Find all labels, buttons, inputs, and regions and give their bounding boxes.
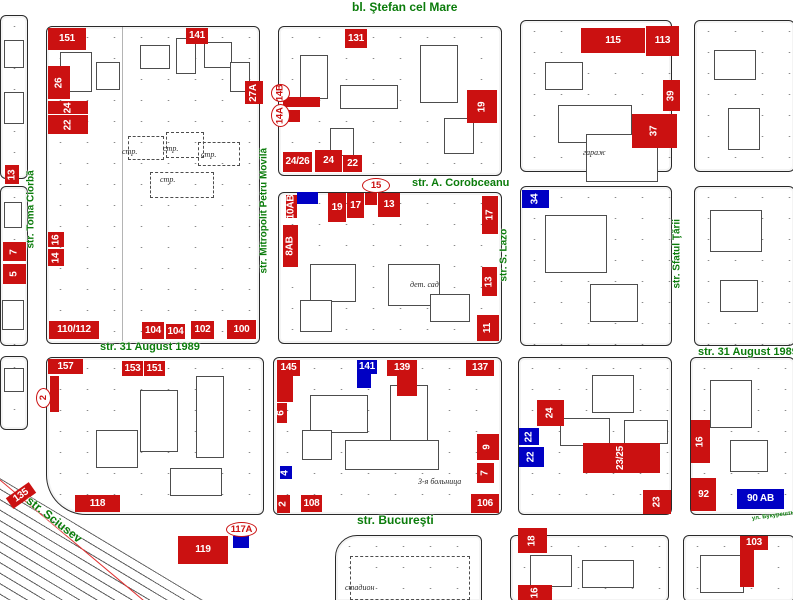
address-marker-label: 110/112 bbox=[57, 325, 91, 335]
street-label: str. Mitropolit Petru Movilă bbox=[259, 148, 270, 274]
building-outline bbox=[720, 280, 758, 312]
address-marker-label: 11 bbox=[483, 323, 493, 333]
address-marker-27A[interactable]: 27A bbox=[245, 81, 263, 104]
address-marker-label: 13 bbox=[484, 276, 494, 287]
address-marker-24[interactable]: 24 bbox=[48, 101, 88, 114]
address-marker-131[interactable]: 131 bbox=[345, 29, 367, 48]
building-outline bbox=[300, 55, 328, 99]
building-outline bbox=[592, 375, 634, 413]
building-outline bbox=[310, 264, 356, 302]
address-marker-13[interactable]: 13 bbox=[378, 193, 400, 217]
map-annotation: стр. bbox=[163, 144, 178, 153]
address-marker-label: 106 bbox=[477, 499, 493, 509]
address-marker-108[interactable]: 108 bbox=[301, 495, 322, 512]
map-annotation: стр. bbox=[201, 150, 216, 159]
address-marker-24[interactable]: 24 bbox=[315, 150, 342, 172]
address-marker-label: 139 bbox=[394, 363, 410, 373]
address-marker-10AB[interactable]: 10AB bbox=[286, 195, 297, 218]
building-outline bbox=[420, 45, 458, 103]
building-outline bbox=[710, 380, 752, 428]
address-marker[interactable] bbox=[283, 97, 320, 107]
street-label: str. 31 August 1989 bbox=[100, 341, 200, 353]
address-marker-16[interactable]: 16 bbox=[518, 585, 552, 600]
address-marker-15[interactable]: 15 bbox=[362, 178, 390, 193]
address-marker-label: 10AB bbox=[287, 194, 297, 219]
address-marker-label: 157 bbox=[57, 362, 73, 372]
address-marker-label: 100 bbox=[233, 325, 249, 335]
building-outline bbox=[96, 62, 120, 90]
address-marker-22[interactable]: 22 bbox=[343, 155, 362, 172]
address-marker-label: 104 bbox=[145, 326, 161, 336]
address-marker-label: 131 bbox=[348, 34, 364, 44]
address-marker-label: 15 bbox=[371, 181, 381, 191]
address-marker-14B[interactable]: 14B bbox=[271, 84, 290, 102]
address-marker-17[interactable]: 17 bbox=[347, 193, 364, 218]
address-marker-11[interactable]: 11 bbox=[477, 315, 499, 341]
address-marker-16[interactable]: 16 bbox=[691, 420, 710, 463]
street-label: str. Sfatul Ţării bbox=[672, 219, 683, 288]
building-outline bbox=[700, 555, 744, 593]
building-outline bbox=[545, 215, 607, 273]
address-marker-label: 4 bbox=[281, 470, 291, 475]
address-marker-label: 22 bbox=[347, 159, 358, 169]
address-marker-23-25[interactable]: 23/25 bbox=[583, 443, 660, 473]
address-marker-label: 14 bbox=[51, 252, 61, 263]
building-outline bbox=[624, 420, 668, 444]
address-marker-115[interactable]: 115 bbox=[581, 28, 645, 53]
address-marker-label: 27A bbox=[249, 84, 259, 102]
address-marker-34[interactable]: 34 bbox=[522, 190, 549, 208]
address-marker-label: 34 bbox=[530, 194, 540, 205]
address-marker-label: 14B bbox=[276, 85, 286, 102]
address-marker-113[interactable]: 113 bbox=[646, 26, 679, 56]
address-marker-19[interactable]: 19 bbox=[328, 193, 346, 222]
address-marker-119[interactable]: 119 bbox=[178, 536, 228, 564]
address-marker-139[interactable]: 139 bbox=[387, 360, 417, 376]
building-outline bbox=[728, 108, 760, 150]
address-marker-2[interactable]: 2 bbox=[36, 388, 51, 408]
address-marker-label: 115 bbox=[605, 36, 621, 46]
address-marker-100[interactable]: 100 bbox=[227, 320, 256, 339]
address-marker-label: 151 bbox=[59, 34, 75, 44]
address-marker[interactable] bbox=[233, 536, 249, 548]
address-marker-label: 90 AB bbox=[747, 494, 774, 504]
address-marker-label: 19 bbox=[332, 203, 343, 213]
address-marker-label: 118 bbox=[90, 499, 106, 509]
building-outline bbox=[196, 376, 224, 458]
address-marker-19[interactable]: 19 bbox=[467, 90, 497, 123]
address-marker-23[interactable]: 23 bbox=[643, 490, 671, 514]
address-marker-label: 102 bbox=[194, 325, 210, 335]
address-marker-label: 108 bbox=[303, 499, 319, 509]
street-label: bl. Ştefan cel Mare bbox=[352, 0, 457, 14]
building-outline bbox=[350, 556, 470, 600]
address-marker-7[interactable]: 7 bbox=[3, 242, 26, 261]
address-marker-14A[interactable]: 14A bbox=[271, 104, 290, 127]
map-annotation: стр. bbox=[160, 175, 175, 184]
building-outline bbox=[140, 45, 170, 69]
address-marker-18[interactable]: 18 bbox=[518, 528, 547, 553]
address-marker-22[interactable]: 22 bbox=[519, 428, 539, 445]
address-marker-151[interactable]: 151 bbox=[144, 361, 165, 376]
address-marker-label: 23 bbox=[652, 497, 662, 508]
building-outline bbox=[714, 50, 756, 80]
address-marker-37[interactable]: 37 bbox=[632, 114, 677, 148]
address-marker-39[interactable]: 39 bbox=[663, 80, 680, 111]
address-marker-label: 22 bbox=[63, 119, 73, 130]
address-marker-9[interactable]: 9 bbox=[477, 434, 499, 460]
address-marker-151[interactable]: 151 bbox=[48, 28, 86, 50]
building-outline bbox=[300, 300, 332, 332]
address-marker-label: 22 bbox=[526, 452, 536, 463]
address-marker-label: 7 bbox=[481, 470, 491, 475]
address-marker-6[interactable]: 6 bbox=[277, 403, 287, 423]
address-marker-104[interactable]: 104 bbox=[142, 322, 164, 339]
building-outline bbox=[4, 92, 24, 124]
building-outline bbox=[530, 555, 572, 587]
address-marker-117A[interactable]: 117A bbox=[226, 522, 257, 537]
address-marker-137[interactable]: 137 bbox=[466, 360, 494, 376]
address-marker-label: 8AB bbox=[286, 236, 296, 255]
address-marker-90-AB[interactable]: 90 AB bbox=[737, 489, 784, 509]
address-marker-label: 141 bbox=[189, 31, 205, 41]
address-marker-label: 16 bbox=[51, 234, 61, 245]
building-outline bbox=[560, 418, 610, 446]
address-marker-label: 7 bbox=[10, 249, 20, 254]
street-label: str. Toma Ciorbă bbox=[26, 170, 37, 248]
address-marker-label: 24 bbox=[545, 408, 555, 419]
address-marker-label: 24 bbox=[323, 156, 334, 166]
address-marker-label: 145 bbox=[280, 363, 296, 373]
address-marker-label: 104 bbox=[167, 327, 183, 337]
address-marker-label: 23/25 bbox=[617, 446, 627, 470]
building-outline bbox=[140, 390, 178, 452]
address-marker-2[interactable]: 2 bbox=[277, 495, 290, 513]
address-marker-label: 153 bbox=[124, 364, 140, 374]
address-marker-label: 26 bbox=[54, 77, 64, 88]
building-outline bbox=[730, 440, 768, 472]
address-marker-26[interactable]: 26 bbox=[48, 66, 70, 99]
address-marker-13[interactable]: 13 bbox=[482, 267, 497, 296]
street-label: str. 31 August 1989 bbox=[698, 346, 793, 358]
building-outline bbox=[170, 468, 222, 496]
address-marker-label: 39 bbox=[666, 90, 676, 101]
address-marker-label: 9 bbox=[483, 444, 493, 449]
map-annotation: гараж bbox=[583, 148, 606, 157]
address-marker-label: 151 bbox=[146, 364, 162, 374]
address-marker[interactable] bbox=[50, 376, 59, 412]
address-marker-17[interactable]: 17 bbox=[482, 196, 498, 234]
address-marker-153[interactable]: 153 bbox=[122, 361, 143, 376]
address-marker-label: 2 bbox=[39, 395, 49, 400]
address-marker-label: 113 bbox=[655, 36, 671, 46]
address-marker-label: 117A bbox=[231, 525, 252, 535]
building-outline bbox=[545, 62, 583, 90]
address-marker-label: 22 bbox=[524, 431, 534, 442]
address-marker-label: 13 bbox=[7, 169, 17, 180]
address-marker-label: 103 bbox=[746, 538, 762, 548]
building-outline bbox=[2, 300, 24, 330]
map-annotation: дет. сад bbox=[410, 280, 439, 289]
address-marker-label: 37 bbox=[649, 126, 659, 137]
building-outline bbox=[96, 430, 138, 468]
address-marker-145[interactable]: 145 bbox=[277, 360, 300, 376]
address-marker-label: 5 bbox=[10, 271, 20, 276]
map-annotation: стадион bbox=[345, 583, 374, 592]
building-outline bbox=[430, 294, 470, 322]
building-outline bbox=[302, 430, 332, 460]
address-marker-label: 24 bbox=[63, 102, 73, 113]
address-marker[interactable] bbox=[277, 376, 293, 402]
address-marker-110-112[interactable]: 110/112 bbox=[49, 321, 99, 339]
street-label: str. Bucureşti bbox=[357, 513, 434, 527]
address-marker-24[interactable]: 24 bbox=[537, 400, 564, 426]
address-marker-label: 92 bbox=[698, 490, 709, 500]
building-outline bbox=[590, 284, 638, 322]
address-marker-106[interactable]: 106 bbox=[471, 494, 499, 513]
address-marker[interactable] bbox=[365, 193, 377, 205]
address-marker-13[interactable]: 13 bbox=[5, 165, 19, 184]
map-canvas[interactable]: 15114126242227A13161475110/1121041041021… bbox=[0, 0, 793, 600]
address-marker-label: 2 bbox=[279, 501, 289, 506]
street-label: str. A. Corobceanu bbox=[412, 177, 509, 189]
address-marker-label: 13 bbox=[384, 200, 395, 210]
address-marker-118[interactable]: 118 bbox=[75, 495, 120, 512]
building-outline bbox=[4, 368, 24, 392]
address-marker-5[interactable]: 5 bbox=[3, 264, 26, 284]
address-marker-24-26[interactable]: 24/26 bbox=[283, 152, 312, 172]
address-marker-8AB[interactable]: 8AB bbox=[283, 225, 298, 267]
building-outline bbox=[582, 560, 634, 588]
address-marker-label: 24/26 bbox=[285, 157, 309, 167]
address-marker-label: 141 bbox=[359, 362, 375, 372]
address-marker-22[interactable]: 22 bbox=[48, 115, 88, 134]
address-marker-141[interactable]: 141 bbox=[357, 360, 377, 374]
address-marker-157[interactable]: 157 bbox=[48, 359, 83, 374]
map-annotation: 3-я больница bbox=[418, 477, 461, 486]
building-outline bbox=[4, 40, 24, 68]
address-marker-102[interactable]: 102 bbox=[191, 321, 214, 339]
parcel-line bbox=[122, 27, 123, 341]
address-marker-label: 16 bbox=[530, 587, 540, 598]
address-marker-103[interactable]: 103 bbox=[740, 536, 768, 550]
address-marker-16[interactable]: 16 bbox=[48, 232, 64, 247]
street-label: str. S. Lazo bbox=[499, 229, 510, 282]
address-marker-label: 137 bbox=[472, 363, 488, 373]
address-marker-label: 14A bbox=[276, 107, 286, 124]
building-outline bbox=[310, 395, 368, 433]
address-marker[interactable] bbox=[297, 192, 318, 204]
building-outline bbox=[710, 210, 762, 252]
address-marker-4[interactable]: 4 bbox=[280, 466, 292, 479]
address-marker[interactable] bbox=[397, 376, 417, 396]
address-marker-label: 16 bbox=[695, 436, 705, 447]
address-marker-label: 18 bbox=[527, 535, 537, 546]
address-marker-7[interactable]: 7 bbox=[477, 463, 494, 483]
address-marker-92[interactable]: 92 bbox=[691, 478, 716, 511]
address-marker-141[interactable]: 141 bbox=[186, 28, 208, 44]
address-marker-label: 17 bbox=[350, 201, 361, 211]
map-annotation: стр. bbox=[122, 147, 137, 156]
address-marker-label: 6 bbox=[277, 410, 287, 415]
address-marker[interactable] bbox=[740, 550, 754, 587]
building-outline bbox=[204, 42, 232, 68]
building-outline bbox=[4, 202, 22, 228]
address-marker-label: 119 bbox=[195, 545, 211, 555]
address-marker-104[interactable]: 104 bbox=[166, 324, 185, 339]
building-outline bbox=[444, 118, 474, 154]
address-marker-22[interactable]: 22 bbox=[519, 447, 544, 467]
address-marker-label: 19 bbox=[477, 101, 487, 112]
building-outline bbox=[340, 85, 398, 109]
address-marker-14[interactable]: 14 bbox=[48, 249, 64, 266]
building-outline bbox=[345, 440, 439, 470]
address-marker-label: 17 bbox=[485, 210, 495, 221]
address-marker[interactable] bbox=[357, 374, 371, 388]
